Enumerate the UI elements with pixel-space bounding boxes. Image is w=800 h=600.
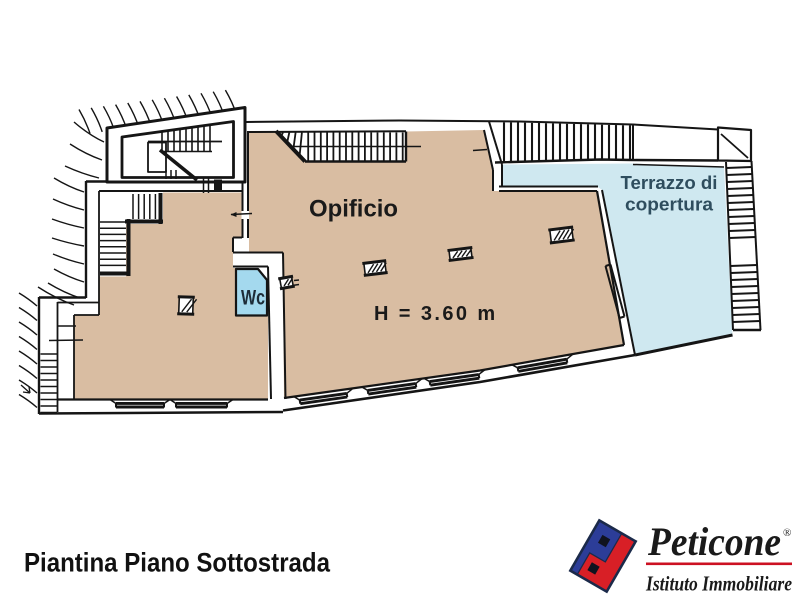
svg-text:Piantina Piano Sottostrada: Piantina Piano Sottostrada xyxy=(24,548,331,578)
svg-text:®: ® xyxy=(783,527,791,539)
svg-text:Peticone: Peticone xyxy=(647,519,781,564)
svg-text:Terrazzo di: Terrazzo di xyxy=(621,172,718,193)
svg-text:copertura: copertura xyxy=(625,194,714,215)
svg-text:Opificio: Opificio xyxy=(309,196,398,223)
svg-text:H = 3.60 m: H = 3.60 m xyxy=(374,303,498,325)
svg-text:Istituto Immobiliare: Istituto Immobiliare xyxy=(645,572,792,596)
svg-text:Wc: Wc xyxy=(241,287,265,310)
